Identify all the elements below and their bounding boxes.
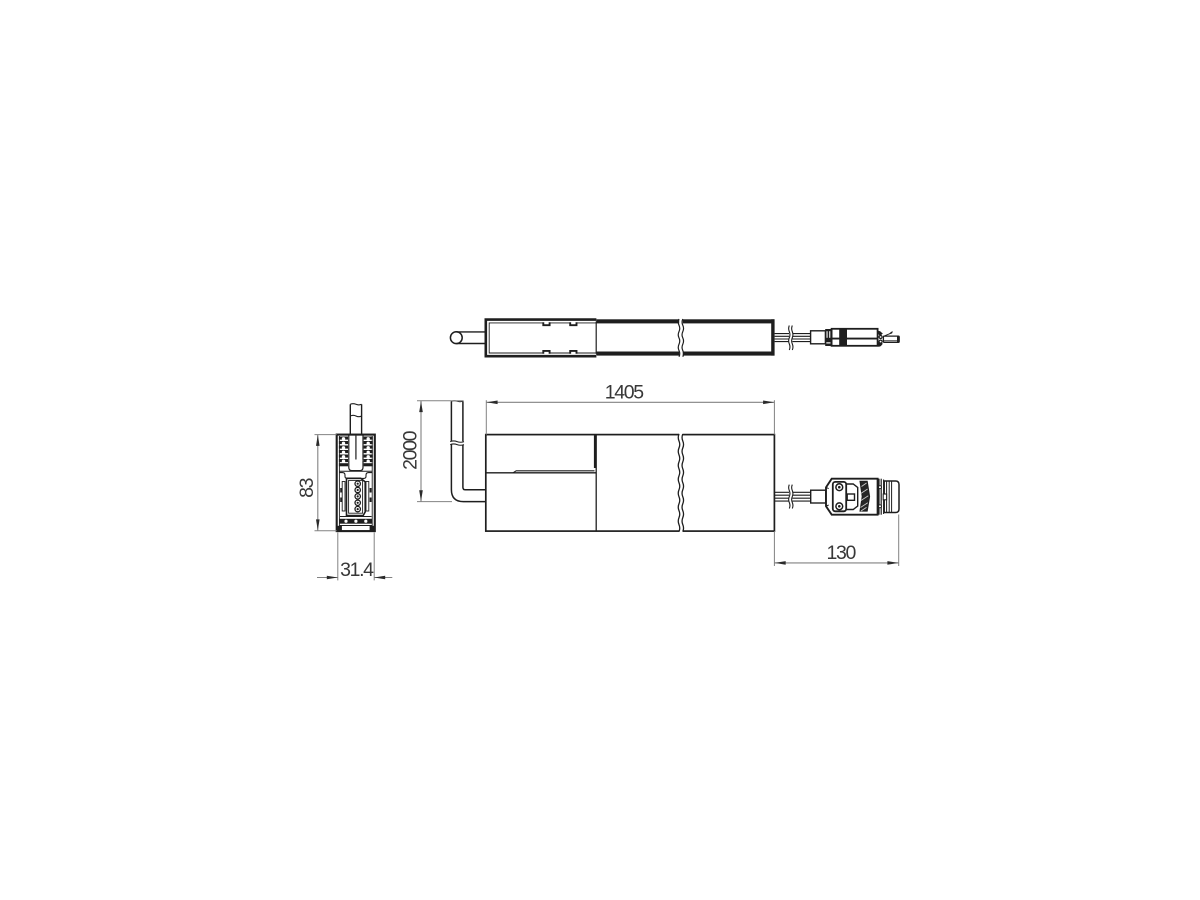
svg-text:83: 83 [296,478,318,497]
svg-text:31.4: 31.4 [340,559,374,581]
svg-text:130: 130 [827,542,857,564]
svg-text:1405: 1405 [605,381,644,403]
svg-text:2000: 2000 [399,430,421,469]
